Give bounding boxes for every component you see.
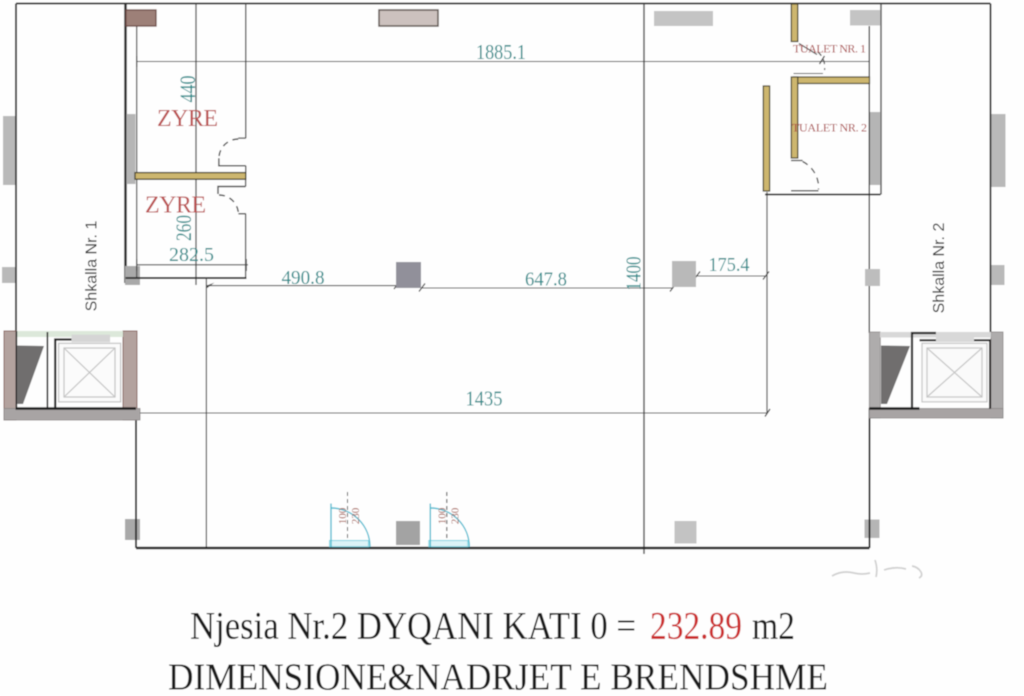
svg-text:1435: 1435: [466, 387, 503, 411]
svg-text:175.4: 175.4: [709, 254, 750, 276]
svg-text:Njesia Nr.2 DYQANI KATI 0 =: Njesia Nr.2 DYQANI KATI 0 =: [190, 605, 636, 648]
svg-text:TUALET NR. 2: TUALET NR. 2: [792, 121, 867, 135]
svg-text:m2: m2: [752, 605, 795, 648]
svg-text:282.5: 282.5: [169, 244, 214, 266]
svg-text:1400: 1400: [622, 257, 646, 291]
svg-text:440: 440: [175, 76, 200, 103]
svg-text:100: 100: [337, 507, 349, 524]
svg-text:232.89: 232.89: [650, 605, 742, 648]
svg-text:ZYRE: ZYRE: [157, 106, 218, 132]
svg-text:230: 230: [450, 507, 462, 524]
svg-text:TUALET NR. 1: TUALET NR. 1: [793, 42, 866, 56]
svg-text:Shkalla Nr. 1: Shkalla Nr. 1: [84, 221, 101, 312]
svg-text:100: 100: [437, 507, 449, 524]
svg-text:1885.1: 1885.1: [476, 40, 526, 64]
svg-text:260: 260: [171, 215, 196, 241]
svg-text:647.8: 647.8: [525, 269, 567, 291]
svg-text:230: 230: [350, 507, 362, 524]
svg-text:Shkalla Nr. 2: Shkalla Nr. 2: [931, 223, 948, 314]
svg-text:ZYRE: ZYRE: [145, 193, 206, 219]
svg-text:DIMENSIONE&NADRJET E BRENDSHME: DIMENSIONE&NADRJET E BRENDSHME: [168, 657, 828, 696]
